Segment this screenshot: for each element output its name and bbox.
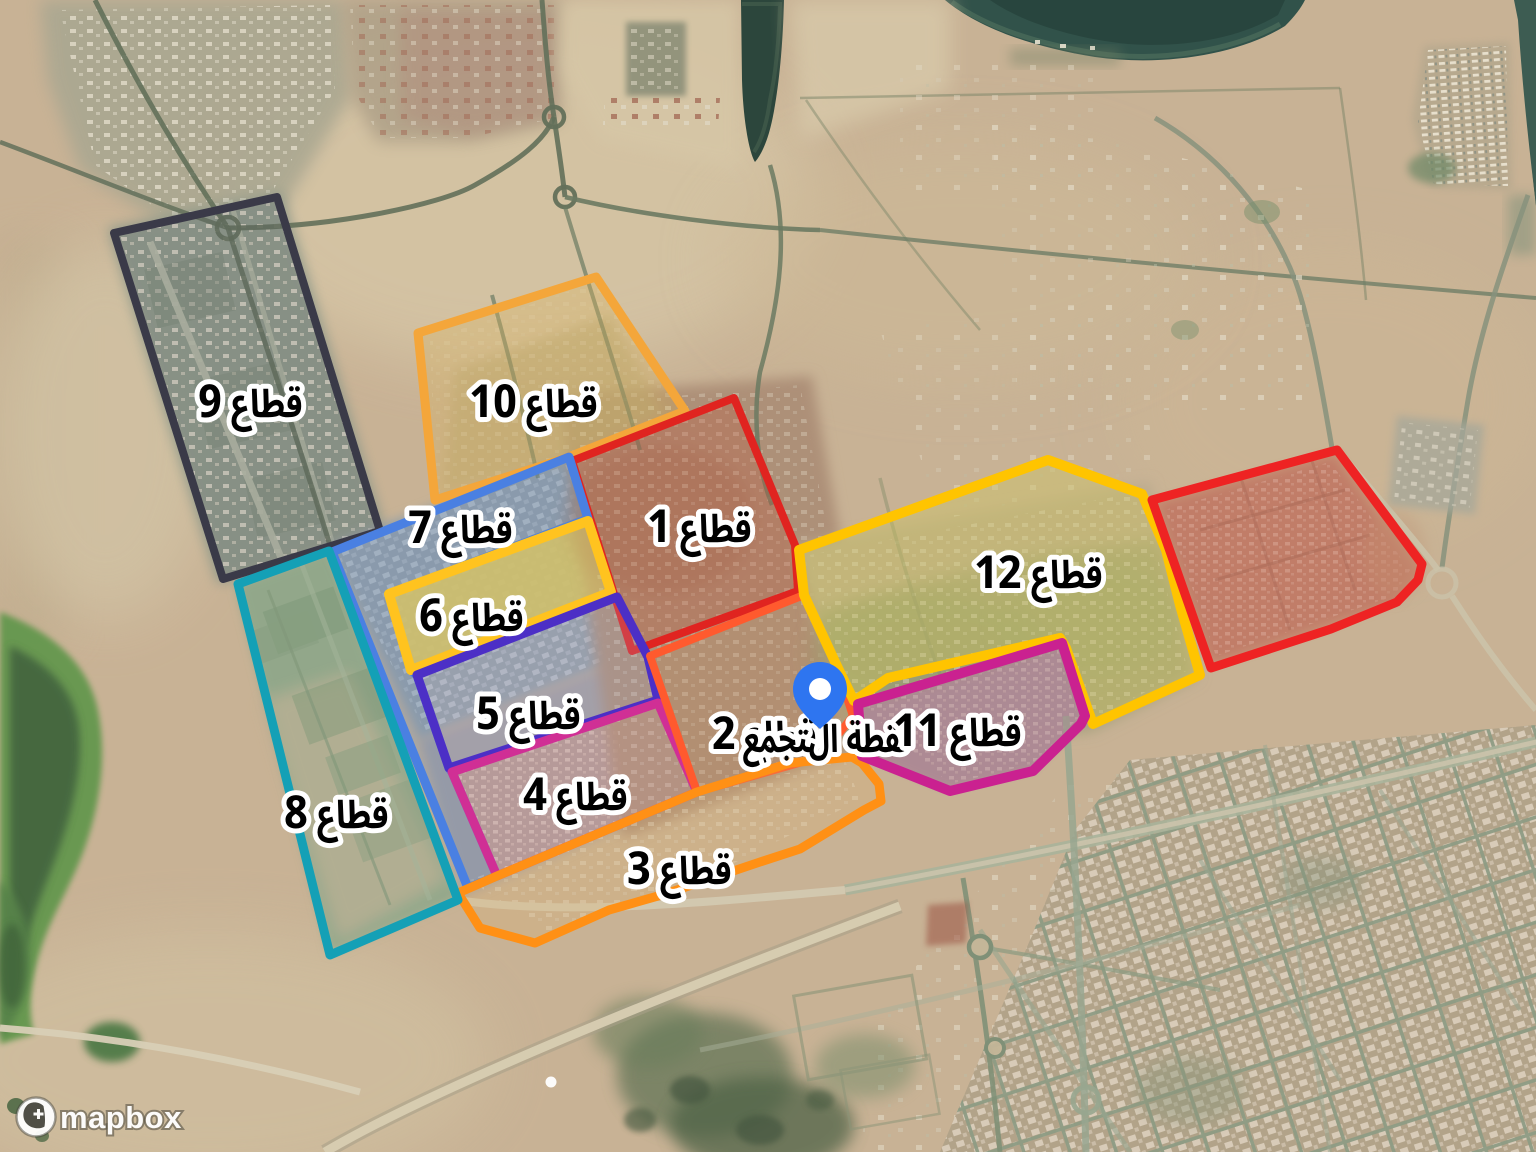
svg-text:mapbox: mapbox: [60, 1100, 182, 1135]
